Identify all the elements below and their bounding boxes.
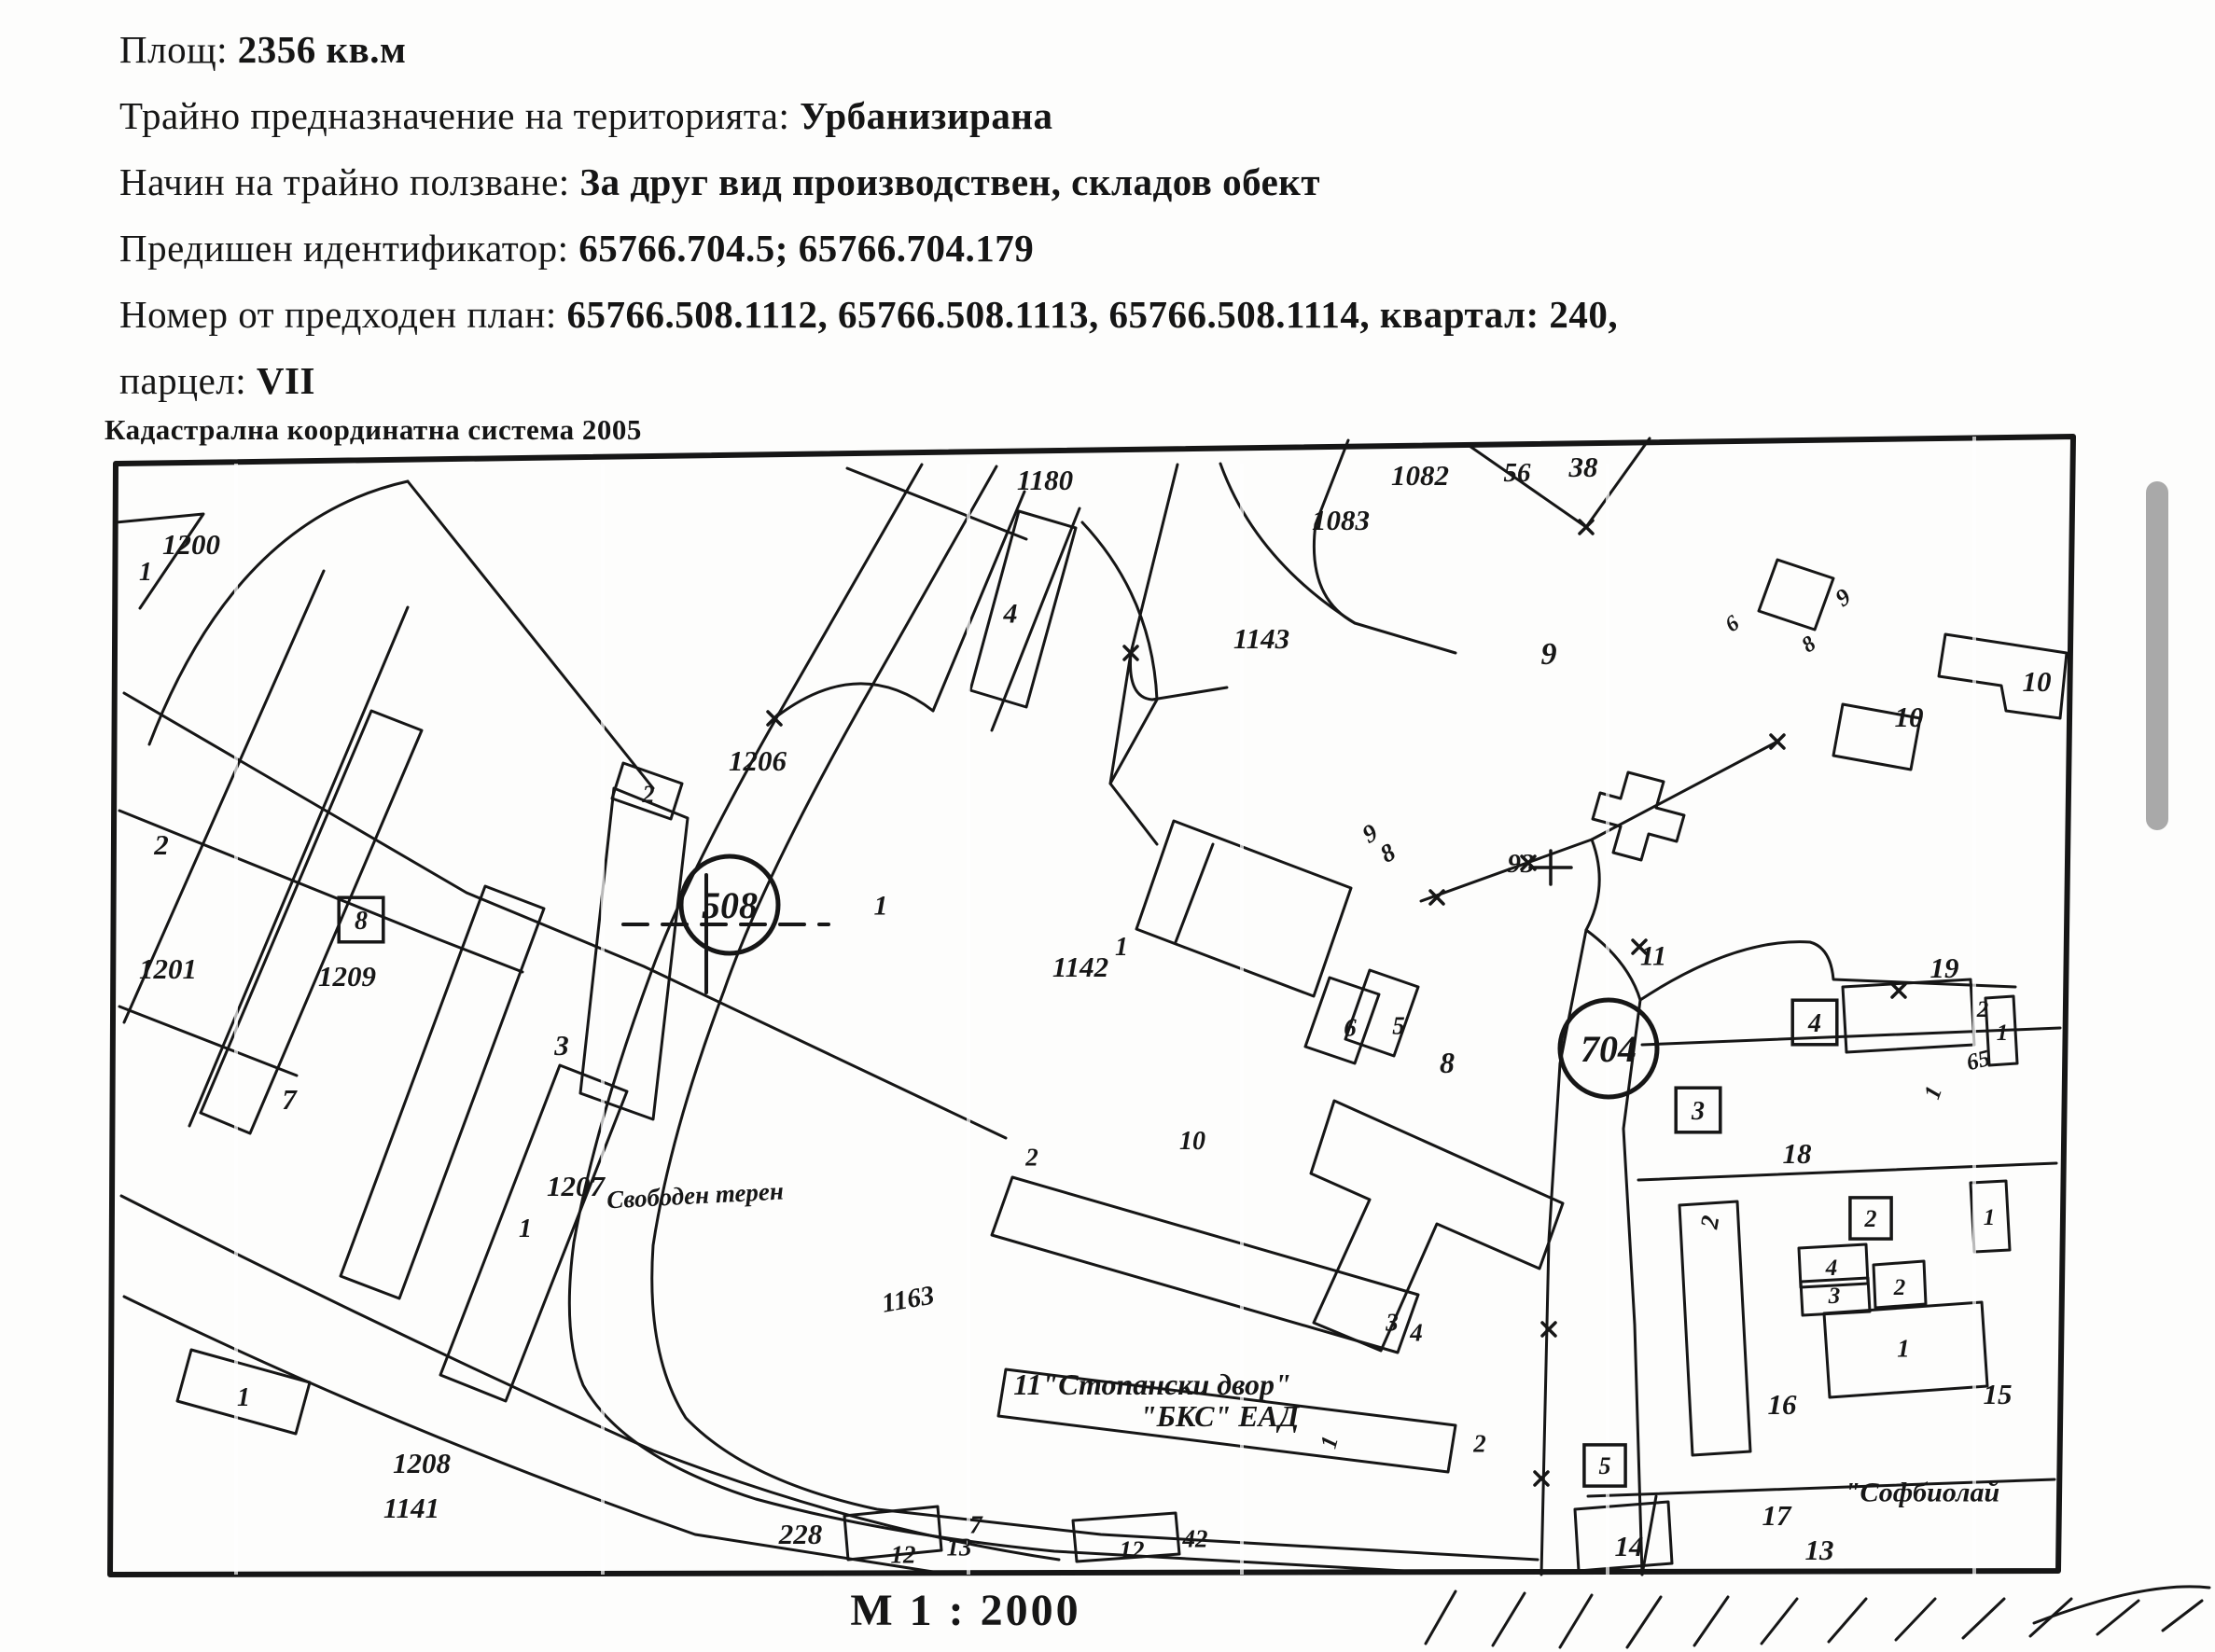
parcel-label: 11"Стопански двор"	[1013, 1367, 1291, 1401]
scanned-cadastral-sketch: Площ: 2356 кв.мТрайно предназначение на …	[0, 0, 2215, 1652]
parcel-label: 4	[1409, 1318, 1423, 1346]
parcel-label: 6	[1720, 611, 1744, 637]
parcel-label: 1	[1919, 1083, 1947, 1103]
parcel-label: 2	[1694, 1214, 1724, 1231]
parcel-label: 1209	[318, 960, 376, 993]
map-scale: М 1 : 2000	[850, 1586, 1080, 1635]
parcel-label: "Софбиолай	[1845, 1478, 1999, 1508]
parcel-label: 2	[153, 828, 169, 861]
parcel-label: 4	[1825, 1256, 1838, 1281]
parcel-label: 19	[1930, 951, 1959, 984]
parcel-label: 228	[778, 1518, 823, 1550]
parcel-label: 1083	[1312, 504, 1370, 536]
parcel-label: 13	[1805, 1534, 1834, 1566]
parcel-label: 8	[1797, 632, 1820, 658]
parcel-label: 42	[1182, 1524, 1208, 1552]
parcel-label: 1	[139, 558, 152, 587]
parcel-label: 8	[1375, 838, 1400, 868]
parcel-label: 1	[1984, 1205, 1996, 1230]
parcel-label: 17	[1762, 1499, 1793, 1532]
survey-tick-marks	[768, 521, 1905, 1485]
parcel-label: 10	[2023, 665, 2052, 698]
parcel-label: 1	[1316, 1434, 1344, 1451]
parcel-label: 2	[1893, 1275, 1906, 1300]
parcel-label: 11	[1640, 941, 1666, 972]
parcel-label: 1	[1115, 933, 1128, 962]
parcel-label: 8	[355, 907, 368, 936]
parcel-label: 4	[1807, 1009, 1821, 1038]
scan-fold-lines	[236, 437, 1974, 1575]
parcel-label: 7	[969, 1510, 983, 1538]
parcel-label: 1208	[393, 1447, 452, 1479]
parcel-label: "БКС" ЕАД	[1140, 1399, 1301, 1433]
parcel-label: 2	[1024, 1143, 1038, 1171]
parcel-label: 1180	[1017, 464, 1073, 496]
parcel-label: 14	[1615, 1530, 1644, 1562]
parcel-label: 16	[1768, 1388, 1798, 1421]
parcel-label: 3	[1385, 1308, 1399, 1336]
parcel-label: 704	[1581, 1028, 1637, 1070]
parcel-label: 18	[1783, 1137, 1813, 1170]
parcel-label: 7	[282, 1083, 298, 1116]
parcel-label: 10	[1179, 1127, 1205, 1156]
parcel-label: 38	[1568, 451, 1599, 483]
parcel-label: 6	[1344, 1013, 1357, 1041]
parcel-label: 12	[1120, 1535, 1145, 1563]
parcel-label: 1	[1897, 1334, 1910, 1362]
parcel-label: 1	[874, 891, 888, 922]
parcel-label: 2	[642, 781, 655, 808]
parcel-label: 1	[237, 1383, 250, 1412]
parcel-label: 5	[1392, 1011, 1405, 1039]
parcel-label: 12	[891, 1540, 916, 1568]
parcel-label: 93	[1508, 849, 1535, 879]
parcel-label: 3	[553, 1029, 569, 1062]
cadastral-map: 5087048432512001212011209712062311207Сво…	[0, 0, 2215, 1652]
parcel-label: 8	[1440, 1046, 1455, 1079]
scrollbar-thumb[interactable]	[2146, 481, 2168, 830]
parcel-label: 1142	[1052, 951, 1108, 983]
parcel-label: 1206	[729, 744, 787, 777]
parcel-label: 1082	[1391, 459, 1449, 492]
parcel-label: 1	[519, 1215, 532, 1243]
parcel-label: Свободен терен	[606, 1177, 785, 1215]
hatch-marks	[1426, 1587, 2209, 1647]
parcel-label: 5	[1599, 1452, 1611, 1479]
parcel-label: 2	[1472, 1429, 1486, 1457]
parcel-label: 1200	[162, 528, 220, 561]
parcel-label: 2	[1976, 997, 1989, 1022]
parcel-label: 3	[1828, 1284, 1841, 1309]
parcel-label: 15	[1984, 1378, 2013, 1410]
parcel-label: 508	[702, 884, 758, 926]
parcel-label: 1143	[1233, 622, 1289, 655]
parcel-label: 1201	[139, 952, 197, 985]
parcel-labels: 5087048432512001212011209712062311207Сво…	[139, 451, 2052, 1569]
parcel-label: 1141	[383, 1492, 439, 1524]
parcel-label: 1207	[547, 1170, 606, 1202]
parcel-label: 1163	[880, 1280, 937, 1318]
parcel-label: 10	[1895, 701, 1924, 733]
parcel-label: 56	[1504, 458, 1532, 488]
parcel-label: 4	[1003, 599, 1018, 630]
parcel-label: 9	[1541, 637, 1557, 672]
parcel-label: 2	[1864, 1205, 1877, 1232]
parcel-label: 1	[1997, 1020, 2009, 1046]
parcel-label: 3	[1691, 1097, 1705, 1126]
parcel-label: 13	[947, 1533, 972, 1561]
parcel-label: 9	[1831, 583, 1856, 612]
